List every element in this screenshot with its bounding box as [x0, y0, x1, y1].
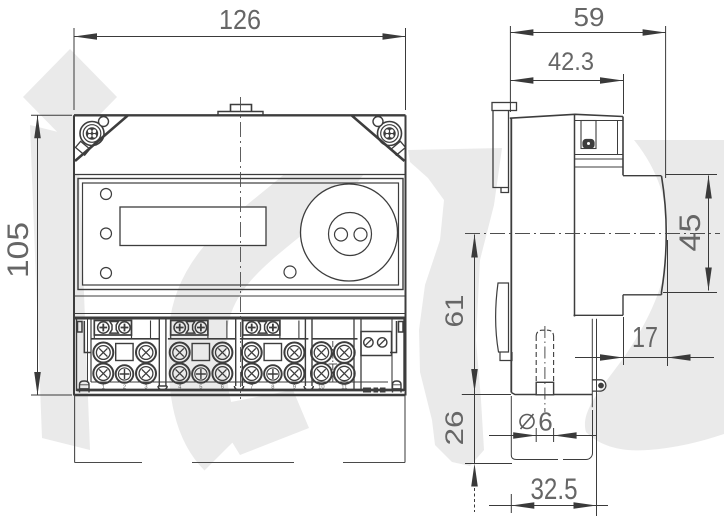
svg-text:32.5: 32.5 — [531, 473, 578, 506]
svg-text:61: 61 — [441, 295, 469, 328]
svg-text:8: 8 — [271, 385, 274, 391]
svg-text:7: 7 — [250, 385, 253, 391]
svg-text:6: 6 — [538, 407, 552, 437]
svg-text:17: 17 — [632, 322, 658, 354]
svg-text:2: 2 — [123, 385, 126, 391]
svg-text:9: 9 — [293, 385, 296, 391]
svg-text:11: 11 — [341, 385, 347, 391]
svg-text:6: 6 — [221, 385, 224, 391]
svg-text:1: 1 — [102, 385, 105, 391]
svg-text:26: 26 — [441, 411, 469, 446]
svg-text:3: 3 — [144, 385, 147, 391]
svg-text:10: 10 — [318, 385, 324, 391]
svg-text:45: 45 — [674, 214, 707, 252]
svg-text:126: 126 — [219, 4, 261, 35]
svg-text:59: 59 — [574, 2, 605, 32]
svg-text:105: 105 — [2, 222, 35, 278]
svg-text:42.3: 42.3 — [548, 48, 594, 76]
svg-text:5: 5 — [199, 385, 202, 391]
